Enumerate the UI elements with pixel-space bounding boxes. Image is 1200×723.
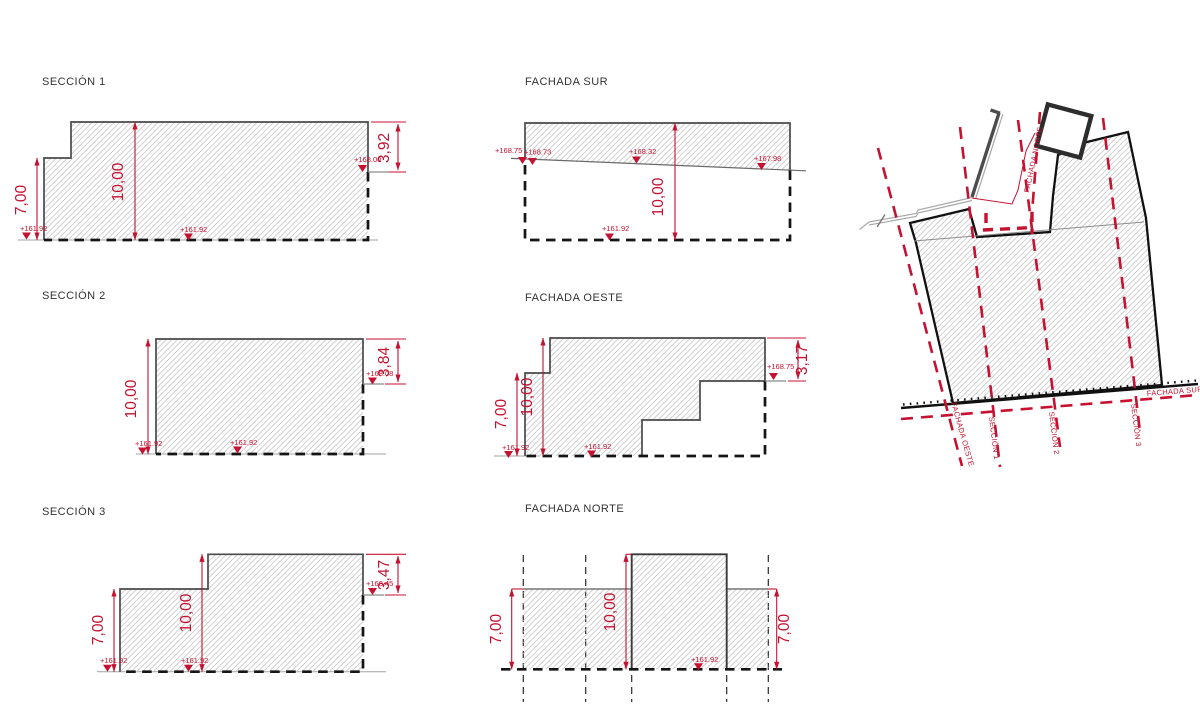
dim-parapet: 3,92: [371, 122, 406, 172]
level-label: +167.98: [754, 154, 781, 163]
level-marker: +161.92: [602, 224, 629, 241]
retaining-walls: [860, 110, 1003, 230]
level-label: +161.92: [602, 224, 629, 233]
existing-building-square: [1037, 104, 1092, 157]
level-label: +168.73: [524, 148, 551, 157]
level-marker: +168.75: [767, 362, 794, 380]
dim-height-10: 10,00: [123, 339, 148, 454]
level-marker-icon: [138, 448, 147, 455]
level-marker: +168.45: [366, 579, 393, 595]
level-marker-icon: [504, 451, 513, 458]
level-label: +161.92: [180, 225, 207, 234]
seccion2-drawing: SECCIÓN 2 10,00 3,84 +168.08 +161.92 +16…: [42, 289, 406, 455]
level-label: +161.92: [135, 439, 162, 448]
seccion1-title: SECCIÓN 1: [42, 75, 106, 88]
seccion3-drawing: SECCIÓN 3 7,00 10,00 3,47 +168.45 +161.9…: [42, 505, 406, 672]
wall-segment: [976, 114, 1003, 198]
seccion2-title: SECCIÓN 2: [42, 289, 106, 302]
level-label: +161.92: [584, 442, 611, 451]
level-marker: +168.75: [495, 146, 527, 164]
seccion1-drawing: SECCIÓN 1 7,00 10,00 3,92 +161.92 +161.9…: [13, 75, 406, 241]
fachada-oeste-title: FACHADA OESTE: [525, 292, 623, 304]
facade-hatch: [525, 123, 790, 170]
section-hatch: [120, 554, 363, 671]
fachada-oeste-drawing: FACHADA OESTE 7,00 10,00 3,17 +168.75 +1…: [493, 292, 811, 458]
dim-label: 7,00: [776, 614, 793, 645]
fachada-norte-title: FACHADA NORTE: [525, 503, 624, 515]
dim-label: 10,00: [602, 592, 619, 631]
level-marker-icon: [368, 588, 377, 595]
dim-label: 7,00: [90, 615, 107, 646]
level-label: +168.75: [767, 362, 794, 371]
level-label: +161.92: [691, 655, 718, 664]
architectural-drawing-sheet: SECCIÓN 1 7,00 10,00 3,92 +161.92 +161.9…: [0, 0, 1200, 723]
level-label: +168.32: [629, 147, 656, 156]
level-label: +168.75: [495, 146, 522, 155]
section-hatch: [156, 339, 363, 454]
wall-segment: [972, 113, 999, 197]
fachada-norte-drawing: FACHADA NORTE 7,00 10,00 7,00: [488, 503, 793, 702]
dim-label: 10,00: [650, 177, 667, 216]
level-label: +161.92: [181, 656, 208, 665]
dim-label: 10,00: [178, 593, 195, 632]
wall-cap: [991, 110, 1001, 113]
level-marker-icon: [103, 665, 112, 672]
site-plan: FACHADA OESTE SECCIÓN 1 SECCIÓN 2 SECCIÓ…: [860, 104, 1200, 467]
level-marker: +168.08: [366, 369, 393, 385]
level-marker-icon: [528, 158, 537, 165]
plan-label-seccion-3: SECCIÓN 3: [1129, 403, 1143, 447]
facade-hatch: [525, 338, 765, 456]
level-marker: +168.73: [524, 148, 551, 166]
plan-label-seccion-2: SECCIÓN 2: [1047, 411, 1061, 455]
dim-right-7: 7,00: [768, 589, 793, 669]
level-label: +161.92: [100, 656, 127, 665]
dim-label: 3,17: [794, 345, 811, 375]
level-marker-icon: [22, 233, 31, 240]
level-marker-icon: [769, 373, 778, 380]
dim-label: 7,00: [13, 185, 30, 216]
plan-label-seccion-1: SECCIÓN 1: [987, 416, 1001, 460]
plan-label-fachada-oeste: FACHADA OESTE: [949, 401, 976, 467]
dim-label: 10,00: [123, 379, 140, 418]
building-footprint-dashed: [983, 212, 1034, 234]
level-label: +168.45: [366, 579, 393, 588]
level-label: +161.92: [502, 443, 529, 452]
dim-label: 10,00: [110, 162, 127, 201]
level-marker-icon: [518, 157, 527, 164]
section-hatch: [44, 122, 368, 240]
fachada-sur-title: FACHADA SUR: [525, 76, 608, 88]
wall-hook: [860, 222, 870, 230]
dim-label: 7,00: [488, 614, 505, 645]
level-label: +161.92: [20, 224, 47, 233]
dim-label: 7,00: [493, 399, 510, 430]
level-label: +168.08: [366, 369, 393, 378]
dim-left-7: 7,00: [488, 589, 523, 669]
level-label: +168.00: [354, 155, 381, 164]
dim-label: 10,00: [519, 377, 536, 416]
drawing-canvas: SECCIÓN 1 7,00 10,00 3,92 +161.92 +161.9…: [0, 0, 1200, 723]
level-label: +161.92: [230, 438, 257, 447]
seccion3-title: SECCIÓN 3: [42, 505, 106, 518]
facade-hatch: [632, 554, 727, 669]
facade-hatch: [727, 589, 769, 669]
fachada-sur-drawing: FACHADA SUR 10,00 +168.75 +168.73 +168.3…: [495, 76, 806, 241]
